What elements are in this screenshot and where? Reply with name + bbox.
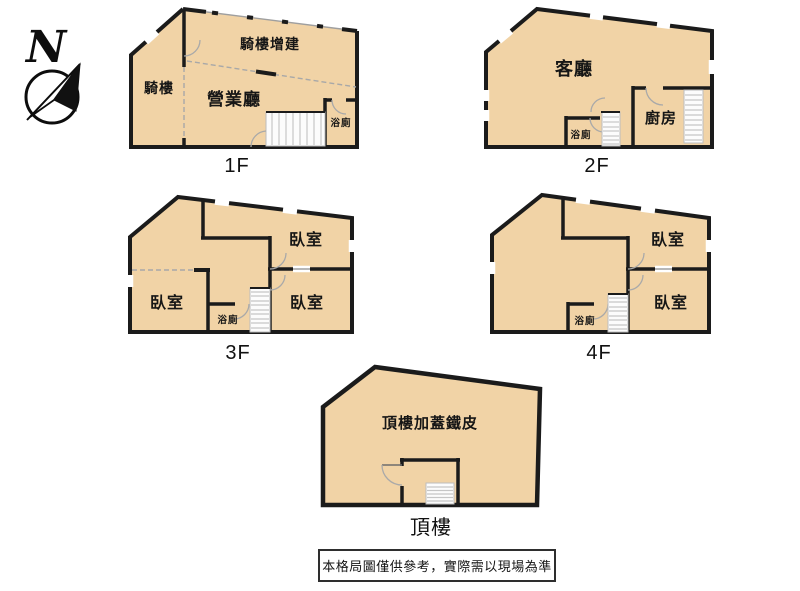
room-label-arcade: 騎樓 <box>144 80 174 96</box>
floor-plan-canvas: N <box>0 0 800 591</box>
room-label-4f-bedroom-b: 臥室 <box>654 293 688 312</box>
room-label-3f-bath: 浴廁 <box>217 314 238 326</box>
disclaimer-text: 本格局圖僅供參考，實際需以現場為準 <box>322 556 552 575</box>
room-label-4f-bedroom-a: 臥室 <box>651 230 685 249</box>
disclaimer-box: 本格局圖僅供參考，實際需以現場為準 <box>318 549 556 582</box>
floor-plan-roof: 頂樓加蓋鐵皮 頂樓 <box>323 367 540 539</box>
floor-plan-3f: 臥室 臥室 臥室 浴廁 3F <box>130 197 352 364</box>
room-label-1f-bath: 浴廁 <box>330 117 351 129</box>
1f-stairs-box <box>266 112 325 146</box>
floor-label-4f: 4F <box>586 342 611 364</box>
room-label-business-hall: 營業廳 <box>207 89 261 109</box>
1f-stairs <box>266 112 325 146</box>
room-label-3f-bedroom-c: 臥室 <box>290 293 324 312</box>
floor-plan-4f: 臥室 臥室 浴廁 4F <box>492 195 709 364</box>
floor-label-3f: 3F <box>225 342 250 364</box>
floor-plan-svg: N <box>0 0 800 591</box>
2f-slab <box>486 9 712 147</box>
roof-stairs <box>426 483 454 504</box>
floor-label-roof: 頂樓 <box>410 516 452 539</box>
room-label-living-room: 客廳 <box>555 58 593 79</box>
floor-label-2f: 2F <box>584 155 609 177</box>
room-label-2f-bath: 浴廁 <box>570 129 591 141</box>
room-label-rooftop-addition: 頂樓加蓋鐵皮 <box>382 414 478 432</box>
room-label-kitchen: 廚房 <box>645 109 677 127</box>
2f-kitchen-stairs <box>684 90 703 143</box>
floor-plan-2f: 客廳 廚房 浴廁 2F <box>486 9 712 177</box>
room-label-3f-bedroom-a: 臥室 <box>289 230 323 249</box>
room-label-3f-bedroom-b: 臥室 <box>150 293 184 312</box>
4f-stairs-box <box>608 294 628 332</box>
north-compass: N <box>24 22 80 123</box>
north-label: N <box>24 22 68 73</box>
4f-stairs <box>608 294 628 332</box>
2f-stairs <box>601 112 620 146</box>
floor-plan-1f: 騎樓增建 騎樓 營業廳 浴廁 1F <box>131 9 357 177</box>
room-label-4f-bath: 浴廁 <box>574 315 595 327</box>
3f-stairs <box>250 288 270 332</box>
room-label-arcade-addition: 騎樓增建 <box>240 36 300 52</box>
floor-label-1f: 1F <box>224 155 249 177</box>
